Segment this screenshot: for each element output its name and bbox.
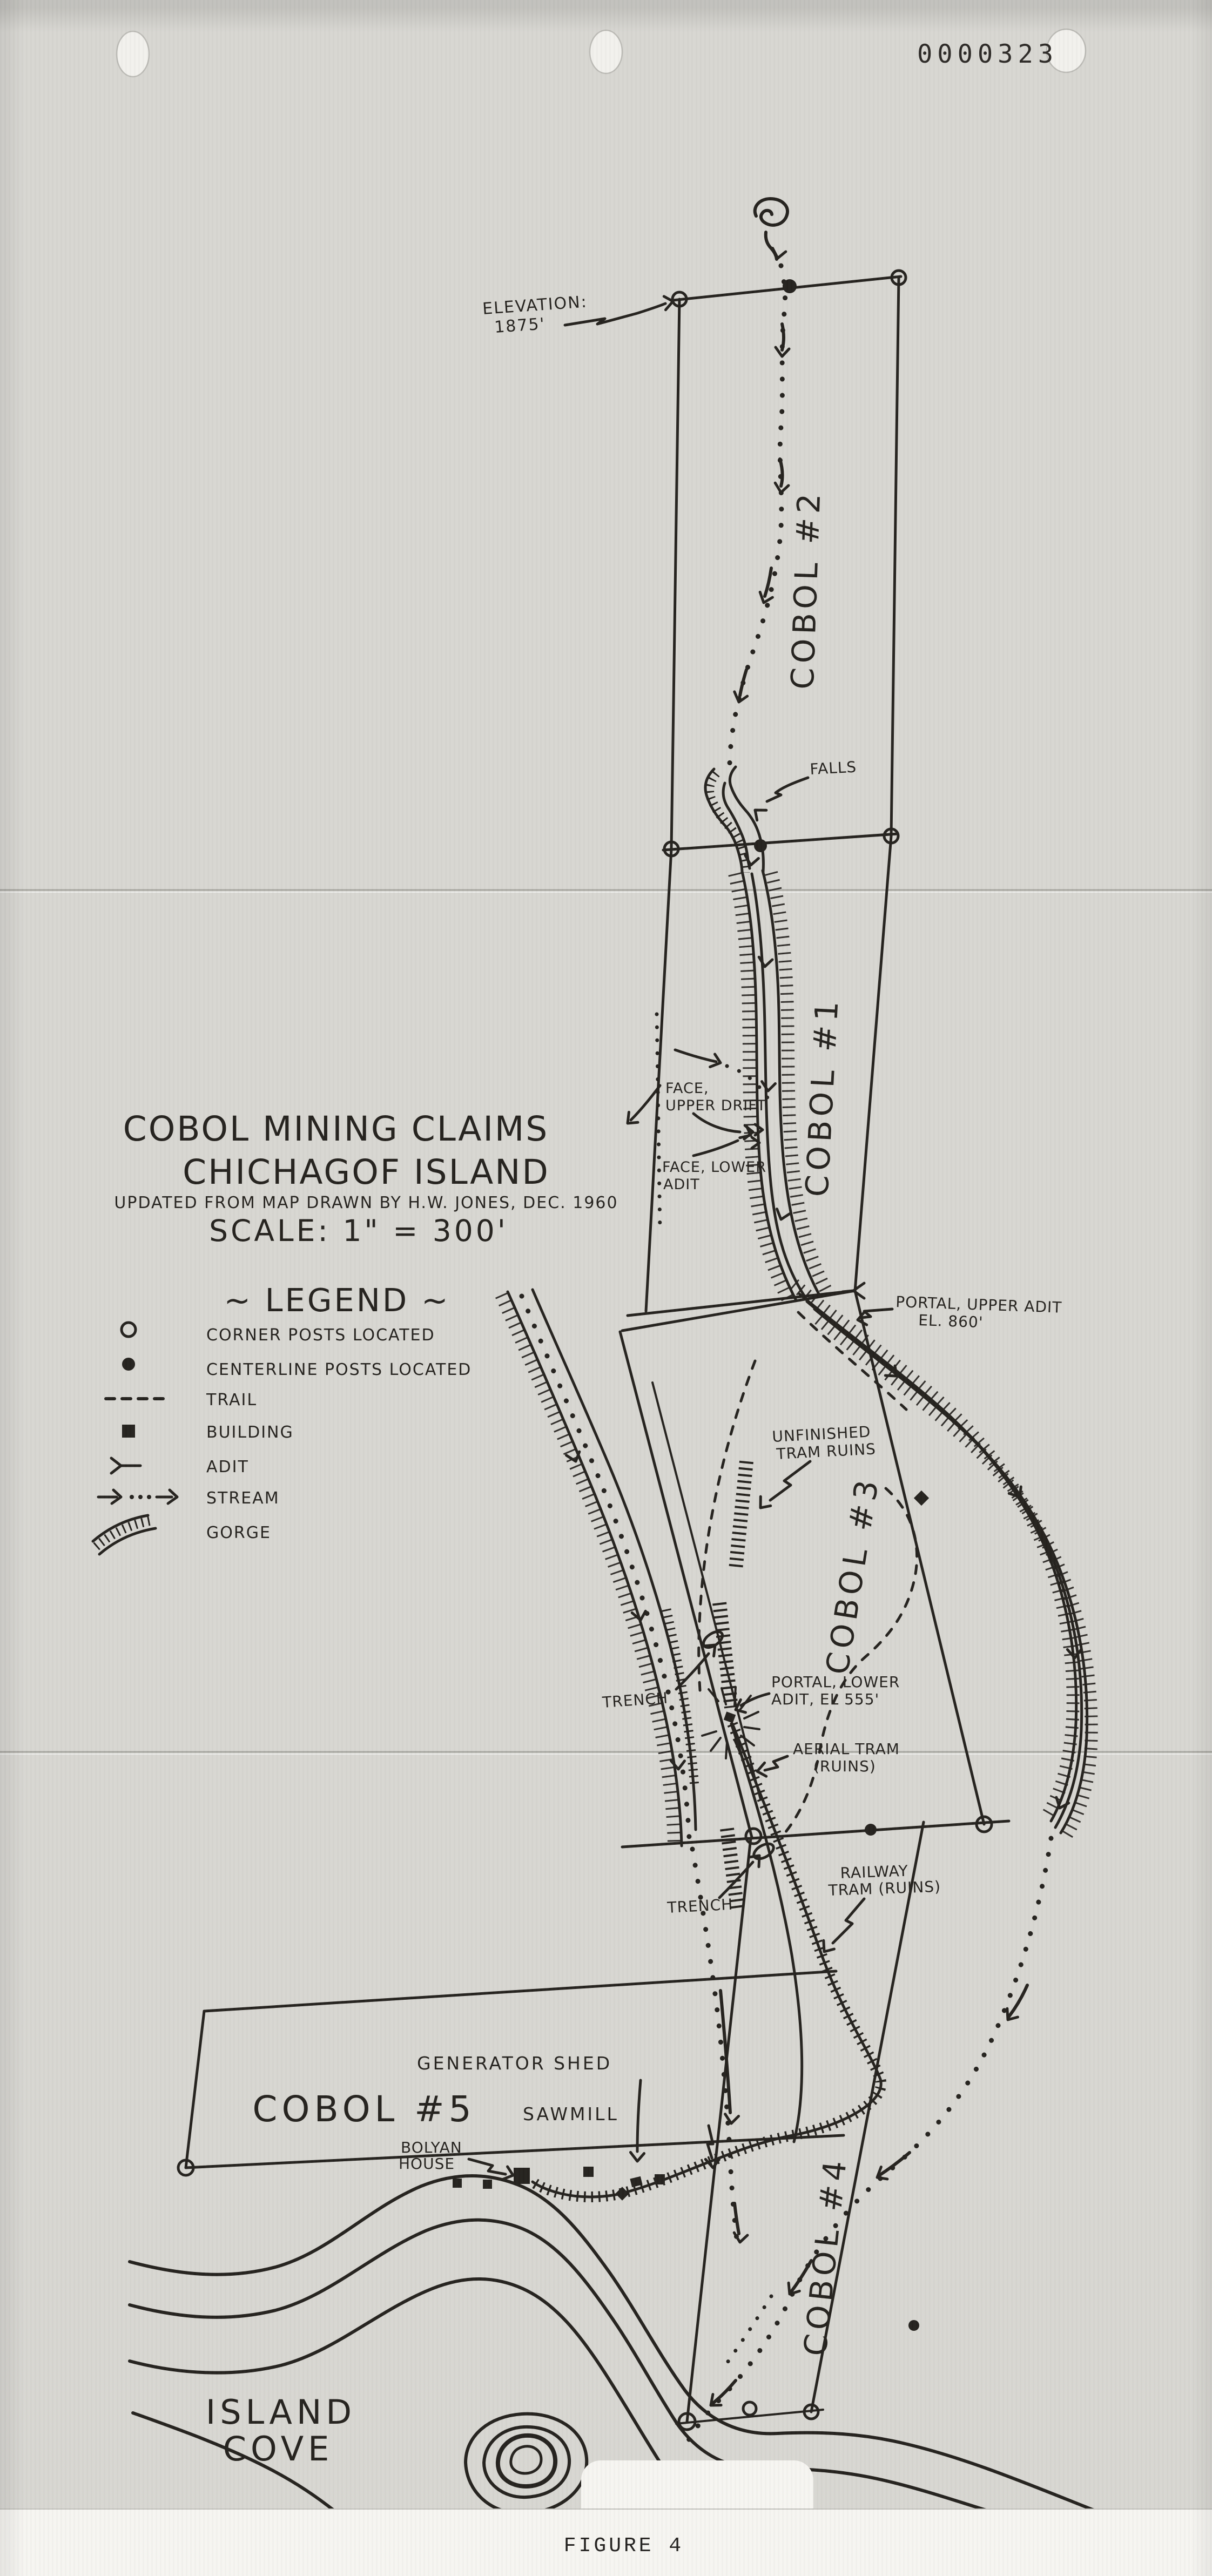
aerial-tram-line [731,1724,802,2142]
west-stream-end-segment [735,2203,739,2234]
stream-arrow-icon [758,957,772,967]
corner-post-icon [743,2402,756,2415]
punch-hole-icon [117,31,149,77]
claim4-south-line [676,2410,823,2424]
face-lower-arrow-shaft [693,1141,738,1156]
generator-shed-arrow-shaft [637,2080,641,2152]
elevation-label-line1: ELEVATION: [482,292,588,319]
unfinished-tram-arrow-icon [755,1496,771,1512]
stream-icon [147,1495,151,1499]
aerial-tram-label-line1: AERIAL TRAM [793,1740,900,1758]
island-cove-label-line1: ISLAND [206,2392,356,2432]
stream-upper-segments [740,324,784,696]
unfinished-tram-arrow-shaft [770,1461,810,1500]
legend-item-label: CORNER POSTS LOCATED [206,1326,435,1345]
stream-source-pond [755,199,787,225]
sawmill-label: SAWMILL [523,2103,619,2125]
legend-item-label: GORGE [206,1523,271,1542]
unfinished-tram-bar [736,1461,746,1569]
building-icon [655,2174,665,2184]
map-canvas: 0000323 [0,0,1212,2576]
trench-upper-label: TRENCH [601,1689,669,1711]
legend-item-label: ADIT [206,1458,249,1476]
falls-label: FALLS [810,758,857,778]
corner-post-icon [122,1323,136,1337]
face-upper-label-line1: FACE, [665,1080,709,1097]
face-upper-label-line2: UPPER DRIFT [665,1097,766,1114]
gorge-icon [93,1515,156,1554]
generator-shed-label: GENERATOR SHED [417,2053,612,2074]
title-block: COBOL MINING CLAIMS CHICHAGOF ISLAND UPD… [114,1109,618,1248]
legend: ~ LEGEND ~ CORNER POSTS LOCATED CENTERLI… [93,1282,472,1554]
building-icon [914,1491,929,1506]
building-icon [453,2179,462,2188]
claim5-north-line [204,1971,836,2011]
bolyan-house-label-line2: HOUSE [399,2155,455,2173]
railway-tram-arrow-shaft [833,1899,864,1943]
corner-post-icon [746,1829,761,1844]
claim1-east-line [855,836,891,1291]
island-contour [498,2436,555,2486]
stamp-number: 0000323 [917,39,1058,69]
adit-icon [111,1458,140,1473]
portal-upper-label-line2: EL. 860' [918,1311,984,1331]
claim-label-cobol5: COBOL #5 [252,2088,475,2130]
elevation-label-line2: 1875' [494,314,546,337]
portal-lower-arrow-shaft [741,1694,769,1705]
bolyan-house-building-icon [514,2168,530,2184]
west-gorge-west-bank [508,1292,682,1846]
aerial-tram-label-line2: (RUINS) [813,1757,876,1775]
island-cove-label-line2: COVE [223,2429,334,2469]
lower-portal-adit-icon [724,1711,736,1723]
map-title-line2: CHICHAGOF ISLAND [183,1152,550,1192]
centerline-post-icon [865,1824,877,1836]
trench-lower-label: TRENCH [666,1896,733,1917]
stream-arrow-icon [762,1082,776,1091]
legend-item-label: CENTERLINE POSTS LOCATED [206,1360,472,1379]
legend-item-label: STREAM [206,1489,280,1508]
map-scale: SCALE: 1" = 300' [209,1213,508,1248]
generator-shed-arrow-icon [630,2152,644,2162]
legend-item-label: BUILDING [206,1423,294,1442]
centerline-post-icon [908,2320,919,2331]
upper-portal-adit-icon [843,1283,864,1298]
building-icon [122,1425,135,1438]
building-icon [483,2180,492,2189]
island-contour [511,2446,541,2473]
face-upper-arrow-shaft [693,1114,740,1132]
fold-creases [0,890,1212,1754]
trench-upper-arrow-shaft [676,1654,709,1689]
railway-tram-label-line2: TRAM (RUINS) [827,1878,941,1899]
legend-heading: ~ LEGEND ~ [224,1282,450,1319]
falls-arrow-shaft [767,778,808,801]
claim4-west-line [687,1838,751,2422]
claim5-west-line [186,2011,204,2168]
trail-shore-dots [722,2296,771,2371]
gorge2-north-hatch [794,1284,1073,1815]
stream-east-dots [682,1838,1051,2453]
generator-shed-building-icon [583,2167,594,2177]
claim2-south-line [663,834,898,850]
claim-label-cobol4: COBOL #4 [797,2155,854,2358]
scanned-map-sheet: 0000323 [0,0,1212,2576]
punch-hole-icon [590,30,622,73]
bolyan-house-arrow-shaft [469,2159,506,2174]
claim2-east-line [891,278,899,836]
claim2-west-line [671,299,679,849]
legend-item-label: TRAIL [206,1391,257,1410]
aerial-tram-arrow-shaft [765,1756,787,1770]
stream-icon [138,1495,143,1499]
stream-arrow-icon [1067,1648,1082,1659]
claim3-west-line [620,1332,752,1837]
bolyan-house-label-line1: BOLYAN [401,2139,462,2156]
portal-lower-label-line1: PORTAL, LOWER [771,1673,900,1691]
trail-arrow-shaft [675,1050,716,1062]
trench-upper-bar [719,1603,731,1708]
claim-label-cobol2: COBOL #2 [784,489,828,690]
face-lower-label-line1: FACE, LOWER [662,1159,766,1176]
face-lower-label-line2: ADIT [663,1176,700,1193]
stream-east-segments [713,1985,1027,2403]
claim-label-cobol1: COBOL #1 [798,996,845,1198]
centerline-post-icon [122,1358,135,1371]
portal-lower-label-line2: ADIT, EL 555' [771,1690,879,1708]
trail-to-lower-portal [699,1361,755,1690]
figure-caption: FIGURE 4 [564,2534,684,2558]
map-subtitle: UPDATED FROM MAP DRAWN BY H.W. JONES, DE… [114,1193,618,1212]
west-stream-dots [522,1296,689,1838]
map-title-line1: COBOL MINING CLAIMS [123,1109,549,1149]
stream-icon [130,1495,134,1499]
shore-line [130,2220,1026,2522]
